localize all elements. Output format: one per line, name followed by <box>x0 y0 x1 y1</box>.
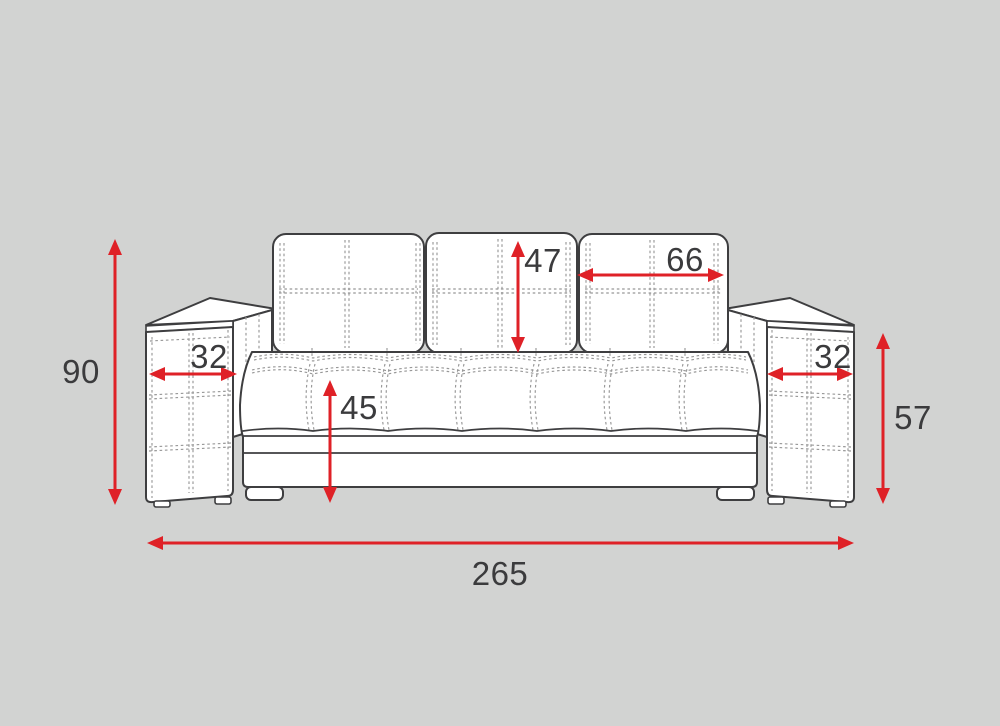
dim-label-armrest-height: 57 <box>894 399 932 436</box>
seat-and-base <box>240 348 760 487</box>
right-base-leg <box>717 487 754 500</box>
dim-label-back-cushion-width: 66 <box>666 241 704 278</box>
left-armrest-inner-foot <box>215 497 231 504</box>
dim-label-seat-height: 45 <box>340 389 378 426</box>
dim-label-overall-height: 90 <box>62 353 100 390</box>
back-cushion-left <box>273 234 424 353</box>
dim-label-overall-width: 265 <box>472 555 529 592</box>
right-armrest-outer-foot <box>830 501 846 507</box>
left-armrest-outer-foot <box>154 501 170 507</box>
dim-label-left-armrest-width: 32 <box>190 338 228 375</box>
seat-body <box>240 352 760 487</box>
diagram-canvas: 90 32 47 66 45 <box>0 0 1000 726</box>
left-base-leg <box>246 487 283 500</box>
dim-label-back-cushion-height: 47 <box>524 242 562 279</box>
right-armrest-inner-foot <box>768 497 784 504</box>
back-cushion-right <box>579 234 728 353</box>
dim-label-right-armrest-width: 32 <box>814 338 852 375</box>
sofa-dimension-diagram: 90 32 47 66 45 <box>0 0 1000 726</box>
